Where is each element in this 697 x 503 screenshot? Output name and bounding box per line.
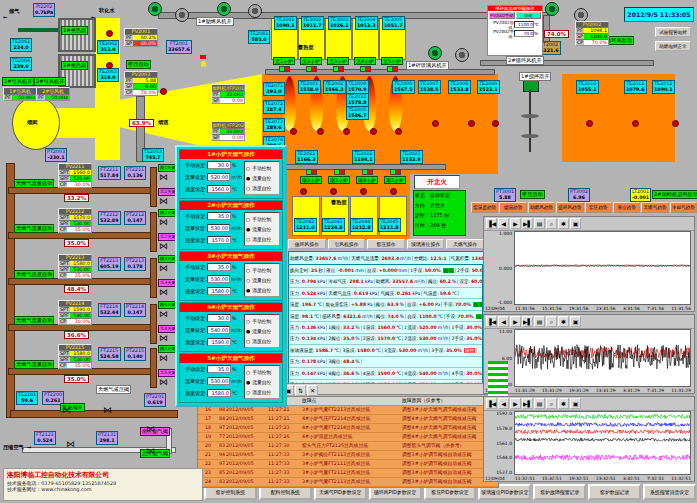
heat-exchanger bbox=[58, 18, 96, 52]
sensor-dot-icon bbox=[330, 188, 337, 195]
burner-indicator bbox=[306, 66, 317, 72]
radio-flow-auto[interactable]: ● 流量自控 bbox=[246, 224, 278, 234]
trend-button[interactable]: 循环风趋势 bbox=[556, 202, 583, 213]
data-cell: 设定: 60.0 % bbox=[458, 279, 482, 284]
alarm-date: 2012/09/05 bbox=[226, 433, 268, 441]
alarm-row[interactable]: 21 94 2012/09/05 11:27:33 3#小炉阀位FT2113过高… bbox=[198, 451, 498, 460]
burner-indicator bbox=[279, 66, 290, 72]
trend-button[interactable]: 天燃气趋势 bbox=[641, 202, 668, 213]
controller-row-key: CP bbox=[576, 40, 584, 45]
radio-manual-control[interactable]: ○ 手动控制 bbox=[246, 367, 278, 377]
cell-value: -0.001 bbox=[337, 268, 355, 273]
sensor-tag: LT2001 bbox=[632, 189, 649, 195]
alarm-code: 84 bbox=[212, 415, 226, 423]
data-cell: 3流设: 530.00 m³/h bbox=[383, 348, 430, 353]
alarm-time: 11:27:30 bbox=[268, 442, 302, 450]
alarm-date: 2012/09/05 bbox=[226, 442, 268, 450]
field-label: 手动设定: bbox=[180, 366, 207, 372]
stirrer-disc bbox=[521, 134, 539, 138]
flow-set-input[interactable]: 520.00 bbox=[207, 173, 231, 181]
controller-faceplate: 1#引风机 PF 50.0Hz bbox=[3, 87, 37, 101]
toolbar-icon[interactable]: ▶▌ bbox=[522, 398, 533, 409]
radio-manual-control[interactable]: ○ 手动控制 bbox=[246, 316, 278, 326]
data-cell: 1流设: 520.00 m³/h bbox=[403, 325, 450, 330]
data-cell: 1手设: 30.0% 流控 bbox=[450, 325, 482, 330]
manual-set-input[interactable]: 35.0 bbox=[207, 365, 231, 373]
cell-unit: % bbox=[355, 336, 359, 341]
sensor-tag: TE3003 bbox=[330, 17, 349, 23]
axis-tick: 11:32:51 bbox=[671, 476, 691, 481]
trend-button[interactable]: 冷却气趋势 bbox=[670, 202, 697, 213]
cell-label: 1手设: bbox=[410, 268, 424, 273]
sensor-value: 1153.9 bbox=[402, 157, 421, 163]
controller-row-key: PF bbox=[576, 28, 584, 33]
small-furnace-label: 北4小炉 bbox=[354, 57, 375, 65]
radio-label: 温度自控 bbox=[252, 236, 271, 242]
toolbar-icon[interactable]: ▶▌ bbox=[522, 218, 533, 229]
popup-section-title: 4#小炉天燃气操作 bbox=[180, 303, 282, 312]
small-furnace-port: 北2小炉 bbox=[298, 57, 324, 73]
controller-rows: PF 1098.1 SP 1100.0 CP 70.0% bbox=[576, 27, 608, 45]
trend-button[interactable]: 窑压趋势 bbox=[585, 202, 612, 213]
alarm-row[interactable]: 16 98 2012/09/05 11:27:21 3#小炉气量FT2213过高… bbox=[198, 406, 498, 415]
toolbar-icon[interactable]: ▶▌ bbox=[522, 316, 533, 327]
cell-value: 50.0% bbox=[424, 268, 442, 273]
manual-set-row: 手动设定: 35.0 % bbox=[180, 363, 242, 375]
burner-off-lamp bbox=[393, 67, 397, 71]
sensor-value: 6.96 bbox=[570, 195, 588, 201]
controller-row: PF 33.0Hz bbox=[212, 91, 244, 97]
toolbar-icon[interactable]: ◀ bbox=[498, 316, 509, 327]
alarm-code: 85 bbox=[212, 469, 226, 477]
flow-set-input[interactable]: 530.00 bbox=[207, 377, 231, 385]
radio-icon: ● bbox=[246, 380, 250, 385]
sensor-tag: TE2007 bbox=[420, 81, 439, 87]
fan-icon bbox=[175, 8, 189, 22]
axis-tick: 1592.0 bbox=[496, 411, 512, 416]
mode-radio-group: ○ 手动控制 ● 流量自控 ○ 温度自控 bbox=[244, 314, 280, 348]
setpoint-input[interactable]: 1100.0 bbox=[514, 21, 534, 28]
manual-set-row: 手动设定: 35.0 % bbox=[180, 261, 242, 273]
controller-row-key: SP bbox=[125, 84, 133, 89]
popup-section-title: 5#小炉天燃气操作 bbox=[180, 354, 282, 363]
gas-branch-group: 天燃气流量自动 PV2212 SPT 1570.0 SPF 530.00 CP … bbox=[6, 208, 188, 253]
alarm-code: 97 bbox=[212, 424, 226, 432]
sensor-tag: PT2200 bbox=[44, 392, 62, 398]
temp-set-row: 温度设定: 1570.0 ℃ bbox=[180, 234, 242, 246]
toolbar-icon[interactable]: ✕ bbox=[307, 385, 318, 396]
toolbar-icon[interactable]: ▣ bbox=[570, 398, 581, 409]
unit-label: ℃ bbox=[231, 289, 237, 294]
axis-tick: 19:32:51 bbox=[569, 476, 589, 481]
pv2002-manual-button[interactable]: PV2002手动 bbox=[489, 12, 515, 19]
controller-row: SPF 530.00 bbox=[59, 266, 91, 272]
radio-icon: ● bbox=[246, 288, 250, 293]
radio-icon: ● bbox=[246, 329, 250, 334]
manual-set-input[interactable]: 30.0 bbox=[207, 161, 231, 169]
pipe bbox=[150, 258, 157, 298]
controller-rows: PF 5.88 SP 6.00 CP 78.0% bbox=[125, 77, 157, 95]
status-line: 计时：269 秒 bbox=[415, 222, 464, 232]
unit-label: m³/h bbox=[230, 379, 242, 384]
controller-row-value: 0.00 bbox=[220, 135, 244, 140]
cell-label: 压力: bbox=[290, 336, 301, 341]
data-cell: 压力: 0.134 kPa bbox=[289, 336, 327, 341]
cell-label: 1手设: bbox=[451, 325, 465, 330]
cell-unit: kPa bbox=[317, 279, 325, 284]
trend-button-bar: 窑温度趋势 烟温趋势 助燃风趋势 循环风趋势 窑压趋势 液位趋势 天燃气趋势 冷… bbox=[471, 202, 697, 213]
mimic-label: 2#引风机开 bbox=[34, 77, 66, 86]
radio-temp-auto[interactable]: ○ 温度自控 bbox=[246, 387, 278, 397]
cell-value: 0.524 bbox=[301, 291, 318, 296]
sensor-tag: PT2201 bbox=[146, 394, 164, 400]
temp-set-input[interactable]: 1560.0 bbox=[207, 185, 231, 193]
toolbar-icon[interactable]: ▤ bbox=[534, 398, 545, 409]
axis-tick: 11:32:51 bbox=[515, 476, 535, 481]
valve-icon: ⋈ bbox=[159, 310, 168, 319]
table-row: 温度: 196.7 ℃ 熔化室窑压: +5.88 Pa 阀位: 63.9 % 自… bbox=[289, 299, 482, 310]
trend-button[interactable]: 窑温度趋势 bbox=[471, 202, 498, 213]
cell-unit: ℃ bbox=[334, 348, 339, 353]
alarm-time: 11:27:21 bbox=[268, 406, 302, 414]
row-cells: 压力: 0.134 kPa 2阀位: 35.0 % 2温设: 1570.0 ℃ … bbox=[289, 336, 482, 341]
valve-icon: ⋈ bbox=[159, 264, 168, 273]
sensor-tag: PT3002 bbox=[570, 189, 588, 195]
alarm-code: 97 bbox=[212, 460, 226, 468]
cell-unit: kPa bbox=[412, 291, 420, 296]
sensor-value-box: TE2002 1566.2 bbox=[323, 80, 346, 94]
alarm-fault: 4#小炉温度过高或过低 bbox=[302, 433, 402, 441]
radio-flow-auto[interactable]: ● 流量自控 bbox=[246, 173, 278, 183]
sensor-value-box: TE2021 1166.3 bbox=[295, 150, 318, 164]
alarm-date: 2012/09/05 bbox=[226, 460, 268, 468]
cell-value: 0.134 bbox=[301, 336, 318, 341]
burner-indicator bbox=[306, 169, 317, 175]
alarm-time: 11:27:26 bbox=[268, 433, 302, 441]
mimic-label: 2#循环风机开 bbox=[506, 56, 544, 65]
mimic-label: 压缩空气 bbox=[2, 444, 25, 451]
cell-value: 0.261 bbox=[396, 291, 413, 296]
cell-unit: m³/h bbox=[438, 336, 449, 341]
burner-on-lamp bbox=[391, 170, 395, 174]
sensor-value: 1211.8 bbox=[380, 225, 399, 231]
controller-row: CP 30.0% bbox=[59, 181, 91, 187]
small-furnace-label: 南5小炉 bbox=[384, 176, 405, 184]
cell-unit: m³/h bbox=[438, 371, 449, 376]
controller-rows: SPT 1590.0 SPF 540.00 CP 30.0% bbox=[59, 306, 91, 324]
mimic-label: 蓄热室 bbox=[330, 199, 348, 206]
fan-icon bbox=[428, 46, 442, 60]
cell-value: 98.1 bbox=[301, 314, 314, 319]
alarm-row[interactable]: 22 97 2012/09/05 11:27:33 3#小炉气量FT2111过高… bbox=[198, 460, 498, 469]
controller-row-value: 1580.0 bbox=[70, 261, 91, 266]
controller-row: SP 6.00 bbox=[125, 83, 157, 89]
toolbar-icon[interactable]: ⌕ bbox=[546, 218, 557, 229]
sensor-value-box: TE2072 287.4 bbox=[263, 100, 285, 114]
test-bell-button[interactable]: 试验报警电铃 bbox=[655, 27, 691, 37]
gas-branch-group: 天燃气温度自动 PV2213 SPT 1580.0 SPF 530.00 CP … bbox=[6, 254, 188, 299]
toolbar-icon[interactable]: ▶ bbox=[510, 316, 521, 327]
sensor-dot-icon bbox=[106, 62, 113, 69]
sensor-value: 0.524 bbox=[36, 438, 54, 444]
manual-set-row: 手动设定: 30.0 % bbox=[180, 159, 242, 171]
controller-row-key: SPT bbox=[59, 261, 70, 266]
radio-icon: ○ bbox=[246, 166, 250, 171]
alarm-row[interactable]: 20 83 2012/09/05 11:27:30 窑头气压力PT2125过高或… bbox=[198, 442, 498, 451]
flow-set-input[interactable]: 540.00 bbox=[207, 326, 231, 334]
manual-set-input[interactable]: 35.0 bbox=[207, 263, 231, 271]
flow-set-input[interactable]: 530.00 bbox=[207, 224, 231, 232]
bell-status-button[interactable]: 助燃电铃正常 bbox=[655, 41, 691, 51]
cell-label: 4阀位: bbox=[328, 371, 342, 376]
operation-button[interactable]: 天燃气操作 bbox=[446, 239, 484, 249]
alarm-row[interactable]: 19 77 2012/09/05 11:27:26 4#小炉温度过高或过低 调整… bbox=[198, 433, 498, 442]
sensor-value-box: PI2202 0.7kPa bbox=[33, 3, 55, 17]
axis-tick: 15:31:56 bbox=[542, 306, 562, 311]
cell-value: 0.136 bbox=[301, 325, 318, 330]
data-cell: 2手设: 50.0% 自动 bbox=[456, 268, 482, 273]
sensor-dot-icon bbox=[586, 120, 593, 127]
cell-value: 520.00 bbox=[418, 325, 438, 330]
alarm-time: 11:27:23 bbox=[268, 424, 302, 432]
radio-manual-control[interactable]: ○ 手动控制 bbox=[246, 163, 278, 173]
sensor-tag: TE2072 bbox=[265, 101, 283, 107]
field-label: 温度设定: bbox=[180, 186, 207, 192]
toolbar-icon[interactable]: ⇅ bbox=[295, 385, 306, 396]
axis-tick: 23:31:56 bbox=[596, 306, 616, 311]
toolbar-icon[interactable]: ▶ bbox=[510, 398, 521, 409]
alarm-seq: 18 bbox=[198, 424, 212, 432]
pv2002-auto-button[interactable]: 自动 bbox=[516, 12, 542, 19]
alarm-row[interactable]: 17 84 2012/09/05 11:27:21 4#小炉气压PT2214过高… bbox=[198, 415, 498, 424]
mode-radio-group: ○ 手动控制 ● 流量自控 ○ 温度自控 bbox=[244, 161, 280, 195]
data-cell: 2阀位: 35.0 % bbox=[327, 336, 361, 341]
x-ticks: 11:31:29 15:31:29 19:31:29 23:31:29 3:31… bbox=[515, 388, 694, 393]
cell-unit: % bbox=[400, 302, 404, 307]
sensor-tag: TE2074 bbox=[265, 137, 283, 143]
mimic-label: 窑压自动 bbox=[126, 60, 151, 69]
pipe bbox=[8, 278, 152, 285]
alarm-row[interactable]: 23 85 2012/09/05 11:27:33 3#小炉气量FT2112过高… bbox=[198, 469, 498, 478]
cell-label: 阀位: bbox=[428, 279, 439, 284]
screen-nav-button[interactable]: 窑炉数据记录 bbox=[588, 484, 641, 500]
cell-label: 阀位: bbox=[376, 302, 387, 307]
alarm-row[interactable]: 18 97 2012/09/05 11:27:23 4#小炉气量FT2214过高… bbox=[198, 424, 498, 433]
controller-rows: SPT 1580.0 SPF 530.00 CP 35.0% bbox=[59, 260, 91, 278]
field-label: 流量设定: bbox=[180, 378, 207, 384]
unit-label: % bbox=[231, 367, 236, 372]
controller-rows: PF 33.0Hz SP 0.00 bbox=[212, 128, 244, 140]
toolbar-icon[interactable]: ⌕ bbox=[546, 398, 557, 409]
cell-label: 气累积量: bbox=[451, 256, 471, 261]
alarm-seq: 20 bbox=[198, 442, 212, 450]
unit-label: ℃ bbox=[231, 340, 237, 345]
burner-on-lamp bbox=[280, 67, 284, 71]
sensor-value: 745.7 bbox=[144, 155, 162, 161]
data-cell: 自设: +0.000 mm bbox=[366, 268, 409, 273]
toolbar-icon[interactable]: ▣ bbox=[570, 316, 581, 327]
alarm-seq: 19 bbox=[198, 433, 212, 441]
cell-label: 2阀位: bbox=[328, 336, 342, 341]
cell-label: 3阀位: bbox=[328, 359, 342, 364]
screen-nav-button[interactable]: 系统报警消音设定 bbox=[643, 484, 696, 500]
sensor-value-box: TE2081 585.0 bbox=[248, 30, 270, 44]
cell-value: 1580.0 bbox=[356, 348, 376, 353]
toolbar-icon[interactable]: ✱ bbox=[558, 218, 569, 229]
radio-temp-auto[interactable]: ○ 温度自控 bbox=[246, 183, 278, 193]
controller-row: PF 5.88 bbox=[125, 77, 157, 83]
cell-label: 2流设: bbox=[404, 336, 418, 341]
table-row: 压力: 0.524 kPa 天燃气总压: 0.619 kPa 气阀压: 0.26… bbox=[289, 288, 482, 299]
temp-set-row: 温度设定: 1580.0 ℃ bbox=[180, 285, 242, 297]
operation-button[interactable]: 引风机操作 bbox=[328, 239, 366, 249]
toolbar-icon[interactable]: ▐◀ bbox=[486, 218, 497, 229]
pipe bbox=[8, 324, 152, 331]
controller-row: SPT 1580.0 bbox=[59, 260, 91, 266]
field-label: 流量设定: bbox=[180, 225, 207, 231]
temp-set-input[interactable]: 1570.0 bbox=[207, 236, 231, 244]
radio-manual-control[interactable]: ○ 手动控制 bbox=[246, 214, 278, 224]
controller-row: SPF 530.00 bbox=[59, 356, 91, 362]
alarm-fault-header: 故障点 bbox=[302, 397, 402, 405]
controller-row: PF 50.0Hz bbox=[4, 94, 36, 100]
toolbar-icon[interactable]: ▤ bbox=[534, 316, 545, 327]
radio-temp-auto[interactable]: ● 温度自控 bbox=[246, 285, 278, 295]
cell-unit: ℃ bbox=[376, 348, 381, 353]
fan-icon bbox=[455, 48, 469, 62]
auto-mode-label: 天燃气流量自动 bbox=[14, 316, 54, 325]
sensor-tag: TE2009 bbox=[479, 81, 498, 87]
air-pipe bbox=[543, 15, 550, 43]
row-cells: 压力: 0.794 kPa 冷却气压: 298.1 kPa 助燃风: 33557… bbox=[289, 279, 482, 284]
alarm-row[interactable]: 24 83 2012/09/05 11:27:33 3#小炉气量FT2113过高… bbox=[198, 478, 498, 487]
cell-unit: Pa bbox=[435, 302, 440, 307]
sensor-value-box: TE3005 1051.7 bbox=[382, 16, 405, 30]
controller-row-value: 520.00 bbox=[70, 176, 91, 181]
temp-set-input[interactable]: 1590.0 bbox=[207, 338, 231, 346]
operation-button[interactable]: 循环风操作 bbox=[288, 239, 326, 249]
trend-button[interactable]: 液位趋势 bbox=[613, 202, 640, 213]
toolbar-icon[interactable]: ▤ bbox=[534, 218, 545, 229]
cell-label: 压力: bbox=[290, 359, 301, 364]
field-label: 温度设定: bbox=[180, 339, 207, 345]
toolbar-icon[interactable]: ✱ bbox=[558, 316, 569, 327]
cell-label: 设定: bbox=[459, 279, 470, 284]
sensor-tag: TE2073 bbox=[265, 119, 283, 125]
panel-title: 循环风温调节阀操作 bbox=[488, 6, 542, 11]
radio-label: 手动控制 bbox=[252, 318, 271, 324]
toolbar-icon[interactable]: ▣ bbox=[570, 218, 581, 229]
toolbar-icon[interactable]: ▶ bbox=[510, 218, 521, 229]
trend-button[interactable]: 烟温趋势 bbox=[499, 202, 526, 213]
reversal-status-panel: 状态：自动状态 方向：开北火 定时：1175 秒 计时：269 秒 bbox=[413, 190, 466, 236]
sensor-value: 287.4 bbox=[265, 107, 283, 113]
burner-indicator bbox=[334, 169, 345, 175]
unit-label: % bbox=[231, 265, 236, 270]
data-cell: 天燃气总流量: 2693.4 m³/h bbox=[350, 256, 413, 261]
controller-row-value: 1590.0 bbox=[70, 307, 91, 312]
operation-button[interactable]: 玻璃液位操作 bbox=[407, 239, 445, 249]
controller-row: PF 60.2% bbox=[125, 34, 157, 40]
sensor-value-box: TE2011 1079.6 bbox=[624, 80, 647, 94]
manual-set-input[interactable]: 35.0 bbox=[207, 212, 231, 220]
axis-tick: 23:31:29 bbox=[596, 388, 616, 393]
cell-label: 2手设: bbox=[457, 268, 471, 273]
sensor-dot-icon bbox=[317, 128, 324, 135]
radio-temp-auto[interactable]: ○ 温度自控 bbox=[246, 234, 278, 244]
trend-button[interactable]: 助燃风趋势 bbox=[528, 202, 555, 213]
data-cell: 换向定时: 25 秒 bbox=[289, 268, 325, 273]
pressure-transmitter-box: PT2211 0.136 bbox=[124, 166, 146, 180]
screen-nav-button[interactable]: 窑炉故障报警记录 bbox=[533, 484, 586, 500]
radio-flow-auto[interactable]: ● 流量自控 bbox=[246, 326, 278, 336]
toolbar-icon[interactable]: ✱ bbox=[558, 398, 569, 409]
manual-set-input[interactable]: 30.0 bbox=[207, 314, 231, 322]
manual-set-row: 手动设定: 30.0 % bbox=[180, 312, 242, 324]
valve-icon: ⋈ bbox=[159, 197, 168, 206]
popup-fields: 手动设定: 30.0 % 流量设定: 540.00 m³/h 温度设定: 159… bbox=[180, 312, 242, 350]
toolbar-icon[interactable]: ◀ bbox=[498, 218, 509, 229]
trend-chart-level: ▐◀ ◀ ▶ ▶▌ ▤ ⌕ ✱ ▣ 1.000 0.000 -1.000 12/… bbox=[483, 216, 695, 312]
sensor-value: 1570.9 bbox=[348, 87, 367, 93]
radio-manual-control[interactable]: ○ 手动控制 bbox=[246, 265, 278, 275]
flow-set-input[interactable]: 530.00 bbox=[207, 275, 231, 283]
valve-icon: ⋈ bbox=[159, 378, 168, 387]
radio-flow-auto[interactable]: ○ 流量自控 bbox=[246, 275, 278, 285]
cell-unit: kPa bbox=[365, 279, 373, 284]
controller-faceplate: PV2215 SPT 1580.0 SPF 530.00 CP 35.0% bbox=[58, 344, 92, 369]
sensor-dot-icon bbox=[395, 128, 402, 135]
manual-input[interactable]: 70.0 bbox=[514, 30, 534, 37]
sensor-value: 1586.7 bbox=[348, 113, 367, 119]
toolbar-icon[interactable]: ▐◀ bbox=[486, 398, 497, 409]
cell-label: 1阀位: bbox=[328, 325, 342, 330]
unit-label: m³/h bbox=[230, 175, 242, 180]
axis-date: 12/09/04 bbox=[484, 476, 515, 481]
sensor-dot-icon bbox=[492, 120, 499, 127]
toolbar-icon[interactable]: ▐◀ bbox=[486, 316, 497, 327]
pressure-transmitter-box: PT2212 0.147 bbox=[124, 211, 146, 225]
cell-label: 4手设: bbox=[451, 371, 465, 376]
controller-tag: 加料机YFP202 bbox=[212, 122, 244, 128]
y-axis: 1592.0 1578.0 1561.0 1544.0 1527.0 bbox=[484, 411, 514, 475]
radio-label: 流量自控 bbox=[252, 277, 271, 283]
cell-value: 63.9 bbox=[386, 302, 399, 307]
toolbar-icon[interactable]: ⌕ bbox=[546, 316, 557, 327]
alarm-seq: 17 bbox=[198, 415, 212, 423]
toolbar-icon[interactable]: ◀ bbox=[498, 398, 509, 409]
alarm-code: 77 bbox=[212, 433, 226, 441]
burner-on-lamp bbox=[307, 67, 311, 71]
controller-row: CP 78.0% bbox=[125, 89, 157, 95]
operation-button[interactable]: 窑压操作 bbox=[367, 239, 405, 249]
data-cell: 4手设: 30.0% 流控 bbox=[450, 371, 482, 376]
controller-row: CP 35.0% bbox=[59, 226, 91, 232]
cell-unit: ℃ bbox=[317, 302, 322, 307]
unit-label: ℃ bbox=[231, 391, 237, 396]
radio-flow-auto[interactable]: ● 流量自控 bbox=[246, 377, 278, 387]
temp-set-input[interactable]: 1580.0 bbox=[207, 287, 231, 295]
sensor-tag: TE3005 bbox=[384, 17, 403, 23]
cell-value: 50.0% bbox=[471, 268, 482, 273]
fan-icon bbox=[217, 2, 231, 16]
radio-temp-auto[interactable]: ○ 温度自控 bbox=[246, 336, 278, 346]
burner-indicator bbox=[333, 66, 344, 72]
temp-set-input[interactable]: 1580.0 bbox=[207, 389, 231, 397]
cell-label: 压力: bbox=[290, 291, 301, 296]
radio-icon: ○ bbox=[246, 370, 250, 375]
sensor-value-box: TE2044 1212.8 bbox=[350, 218, 373, 232]
